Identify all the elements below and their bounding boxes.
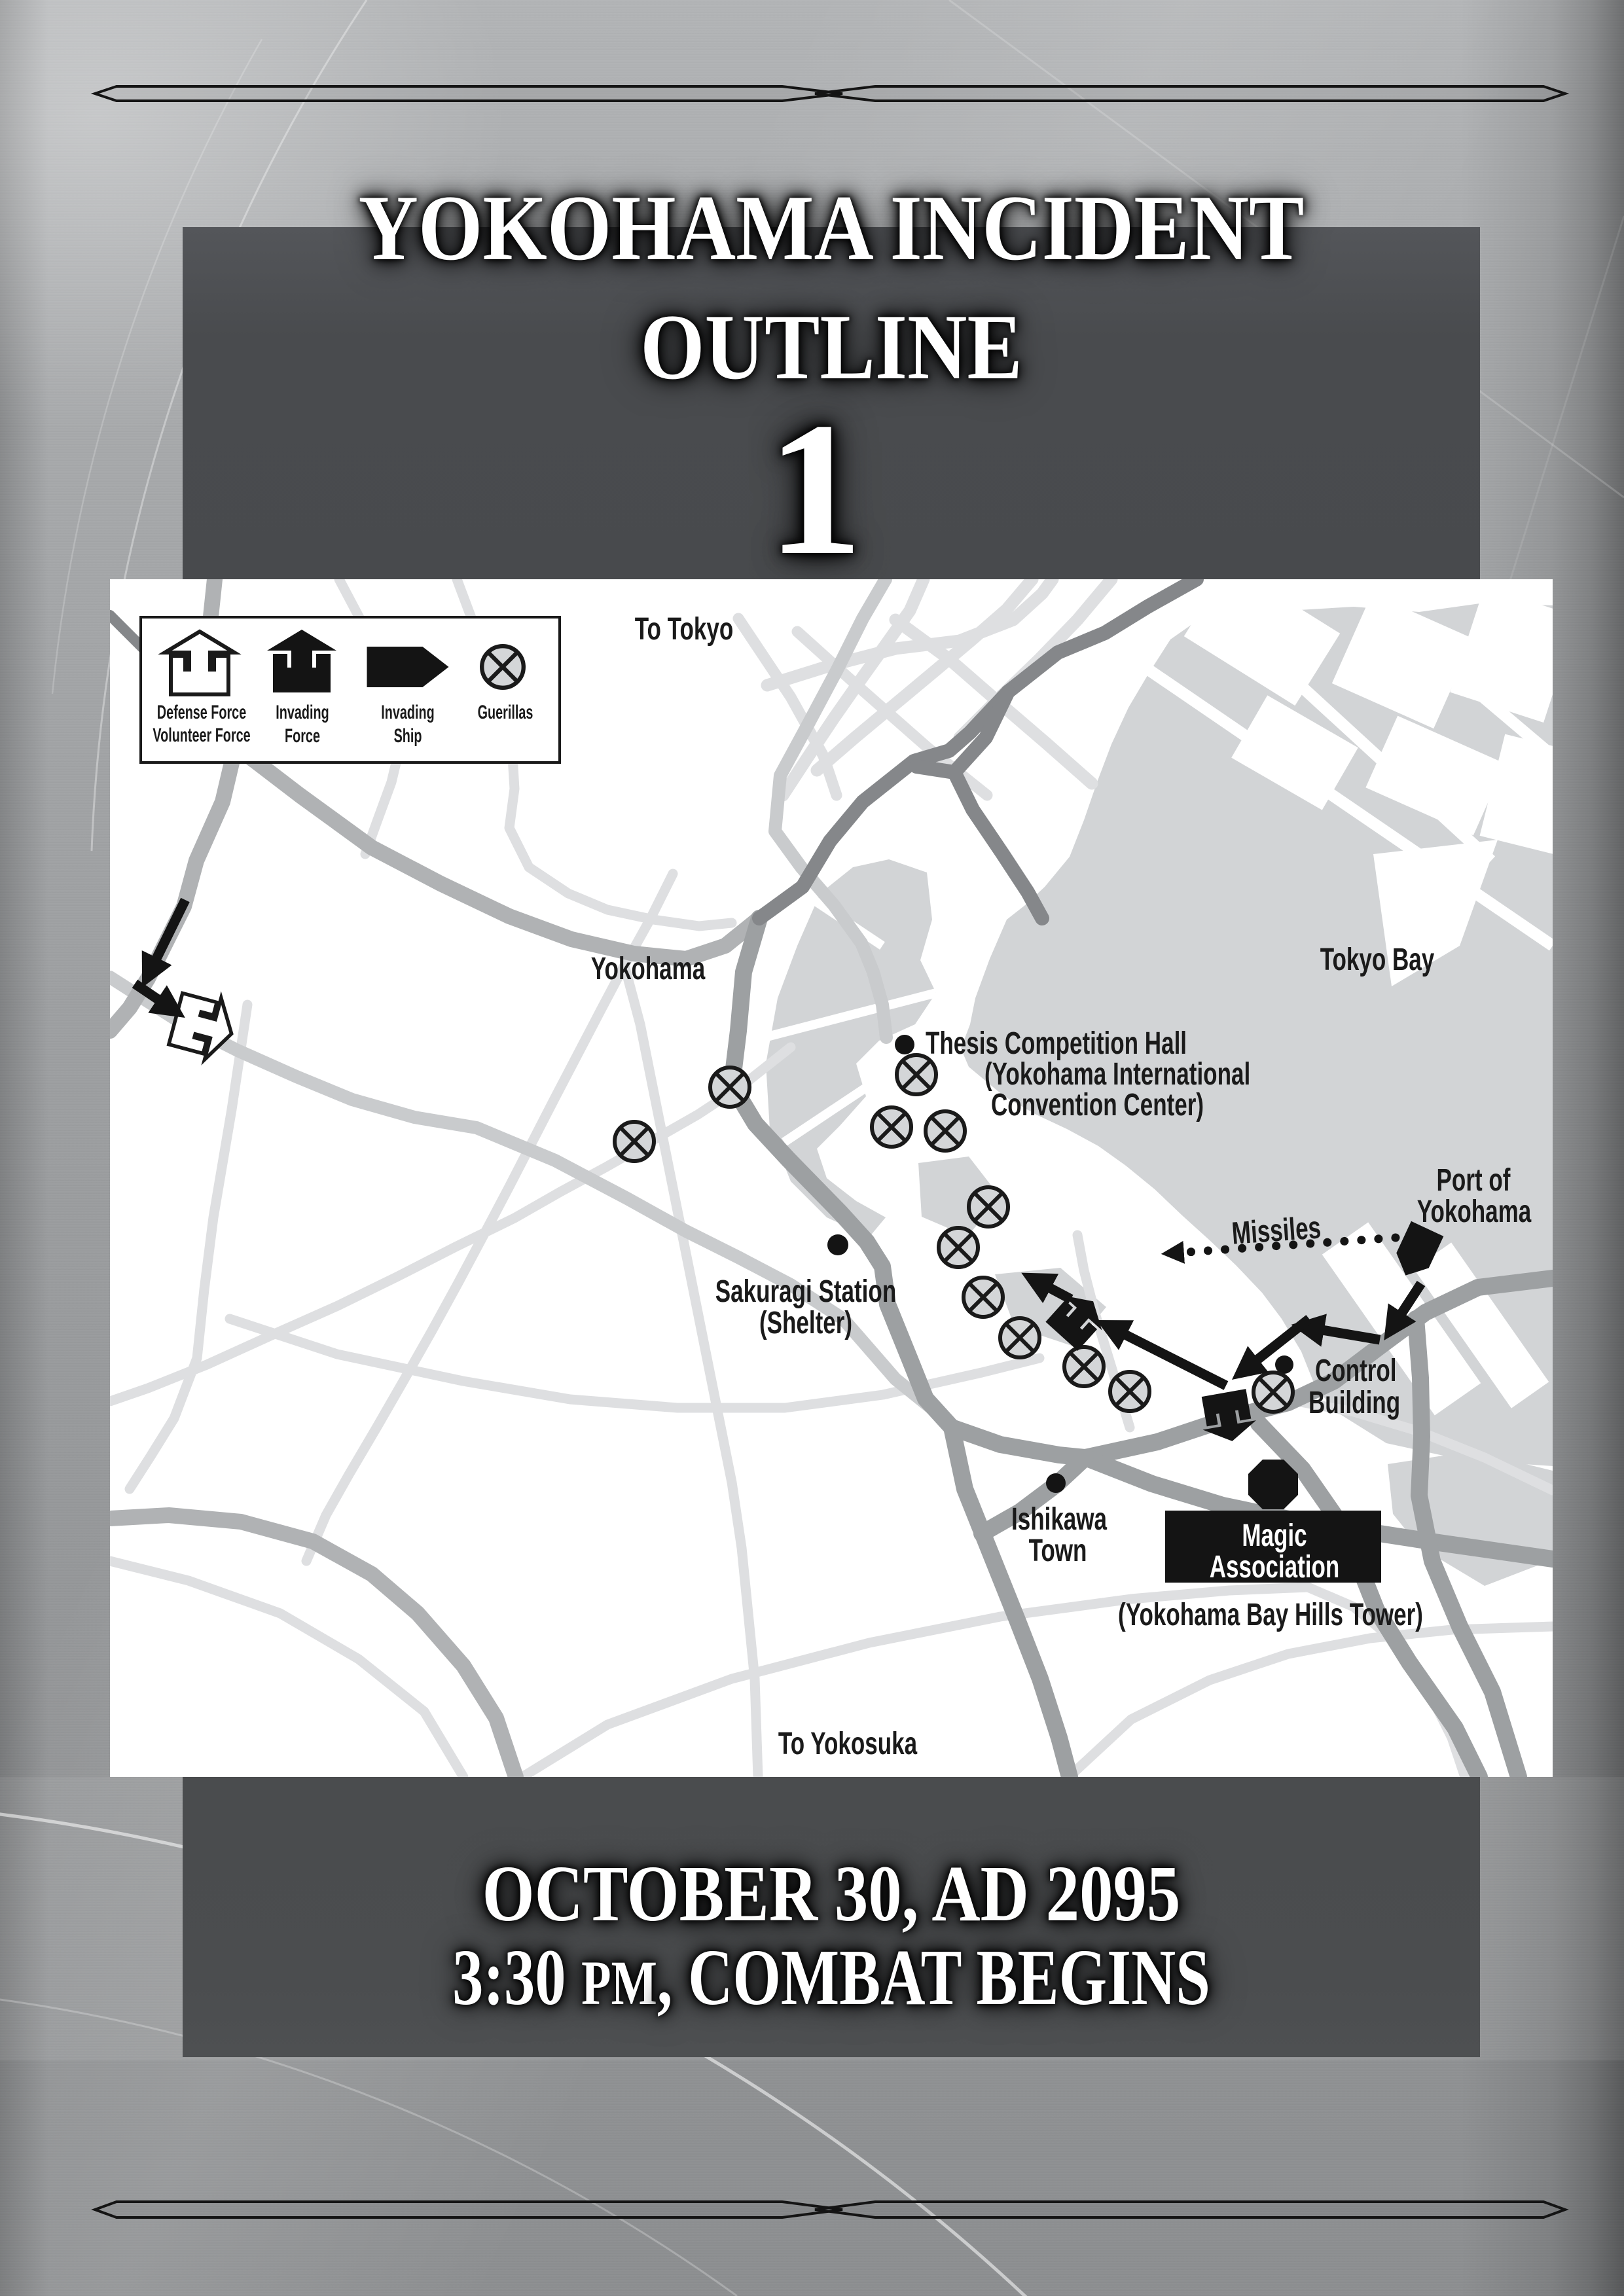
svg-text:Building: Building bbox=[1308, 1385, 1400, 1420]
svg-text:Volunteer Force: Volunteer Force bbox=[153, 725, 250, 746]
svg-text:Thesis Competition Hall: Thesis Competition Hall bbox=[926, 1026, 1187, 1061]
svg-text:Sakuragi Station: Sakuragi Station bbox=[715, 1274, 896, 1309]
svg-text:Yokohama: Yokohama bbox=[1417, 1194, 1532, 1229]
svg-text:Guerillas: Guerillas bbox=[478, 702, 533, 723]
svg-text:(Yokohama Bay Hills Tower): (Yokohama Bay Hills Tower) bbox=[1118, 1597, 1423, 1632]
svg-text:Convention Center): Convention Center) bbox=[991, 1087, 1204, 1122]
svg-text:Ship: Ship bbox=[394, 725, 422, 747]
svg-text:Magic: Magic bbox=[1242, 1518, 1307, 1553]
svg-text:Defense Force: Defense Force bbox=[157, 702, 246, 723]
svg-text:(Yokohama International: (Yokohama International bbox=[984, 1056, 1250, 1092]
svg-text:Association: Association bbox=[1210, 1549, 1340, 1585]
svg-text:To Tokyo: To Tokyo bbox=[635, 611, 734, 647]
svg-text:Force: Force bbox=[285, 725, 320, 747]
svg-text:Yokohama: Yokohama bbox=[591, 951, 706, 986]
svg-text:Ishikawa: Ishikawa bbox=[1011, 1501, 1108, 1537]
svg-text:(Shelter): (Shelter) bbox=[759, 1305, 852, 1340]
svg-text:Tokyo Bay: Tokyo Bay bbox=[1320, 942, 1435, 977]
svg-text:To Yokosuka: To Yokosuka bbox=[778, 1726, 918, 1761]
svg-text:Town: Town bbox=[1029, 1533, 1087, 1568]
svg-text:Control: Control bbox=[1315, 1353, 1397, 1388]
svg-text:Port of: Port of bbox=[1437, 1162, 1511, 1198]
svg-text:Invading: Invading bbox=[276, 702, 329, 723]
svg-text:Invading: Invading bbox=[381, 702, 434, 723]
